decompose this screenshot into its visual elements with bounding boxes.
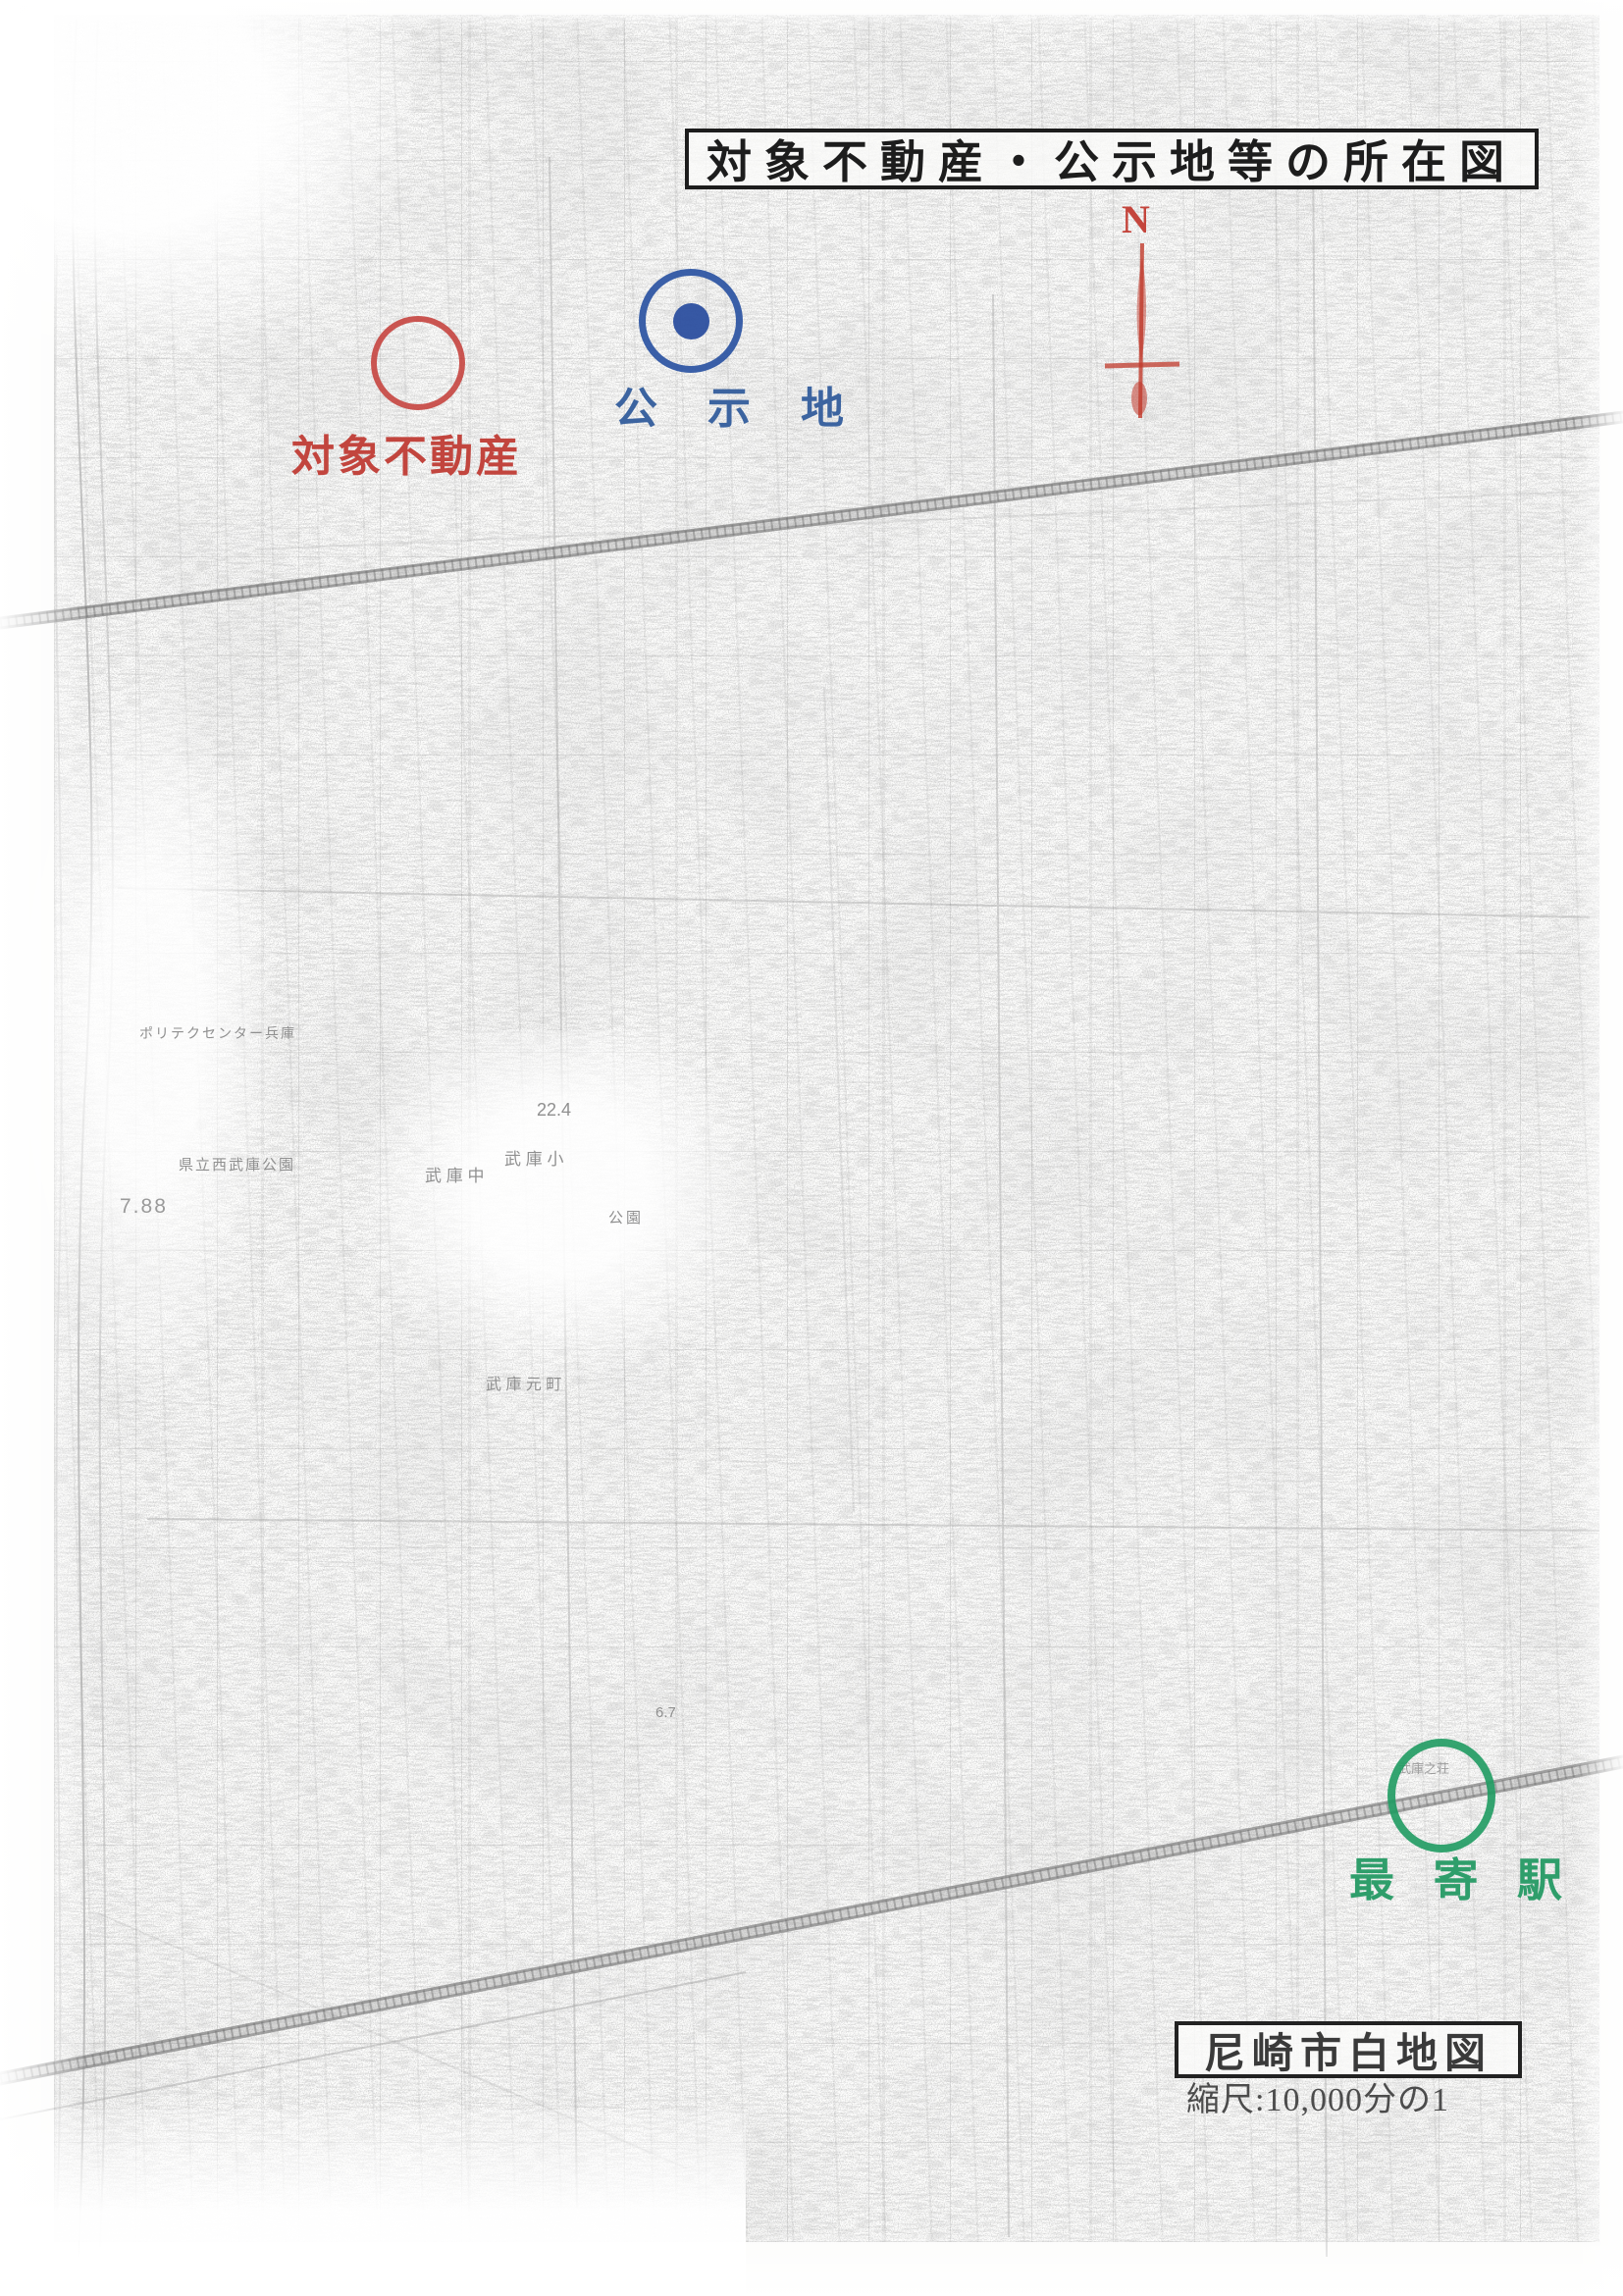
subject-property-label: 対象不動産 bbox=[291, 436, 522, 479]
map-source-name: 尼崎市白地図 bbox=[1204, 2020, 1492, 2080]
nearest-station-marker bbox=[1387, 1739, 1495, 1852]
public-notice-site-dot bbox=[673, 303, 709, 339]
map-scale-label: 縮尺:10,000分の1 bbox=[1186, 2072, 1510, 2120]
public-notice-site-label: 公 示 地 bbox=[614, 388, 864, 431]
street-grid-texture bbox=[54, 18, 1596, 2242]
map-label: 武 庫 中 bbox=[425, 1168, 484, 1184]
map-source-box: 尼崎市白地図 bbox=[1175, 2021, 1522, 2078]
map-label: 7.88 bbox=[120, 1196, 168, 1217]
map-title: 対象不動産・公示地等の所在図 bbox=[707, 127, 1517, 191]
map-label: 武 庫 小 bbox=[504, 1151, 563, 1168]
location-map-page: 22.4 武 庫 中 武 庫 小 公園 県立西武庫公園 7.88 武 庫 元 町… bbox=[0, 0, 1623, 2296]
nearest-station-label: 最 寄 駅 bbox=[1349, 1858, 1576, 1904]
map-title-box: 対象不動産・公示地等の所在図 bbox=[685, 129, 1539, 189]
map-label: 22.4 bbox=[537, 1101, 571, 1119]
map-label: ポリテクセンター兵庫 bbox=[139, 1026, 296, 1040]
map-label: 武 庫 元 町 bbox=[486, 1378, 561, 1393]
map-label: 公園 bbox=[608, 1211, 644, 1226]
map-label: 県立西武庫公園 bbox=[179, 1158, 295, 1173]
public-notice-site-marker bbox=[639, 269, 743, 373]
map-label: 6.7 bbox=[655, 1705, 676, 1720]
subject-property-marker bbox=[371, 316, 465, 410]
north-arrow-icon bbox=[1097, 206, 1187, 434]
